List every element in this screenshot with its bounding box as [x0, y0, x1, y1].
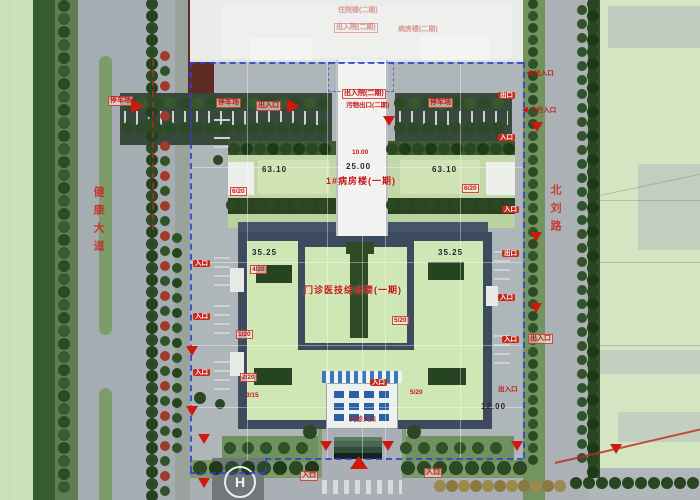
label-east-gateway: 出入口	[498, 386, 518, 393]
entrance-arrow	[383, 116, 395, 126]
boundary-arrow	[198, 478, 210, 488]
boundary-arrow	[320, 441, 332, 451]
label-south-entry: 入口	[300, 471, 318, 481]
label-parking-left: 停车场	[216, 98, 241, 108]
boundary-arrow	[382, 441, 394, 451]
dim-ward-mid: 25.00	[346, 163, 371, 172]
code-badge: 1/20	[236, 330, 253, 339]
label-east-entry: 入口	[498, 134, 515, 141]
dim-main-left: 35.25	[252, 249, 277, 258]
label-main-complex: 门诊医技综合楼(一期)	[304, 286, 402, 296]
label-entry-phase2-faded: 出入院(二期)	[334, 23, 378, 33]
label-west-entry: 入口	[193, 260, 210, 267]
label-outpatient-entry: 门诊入口	[350, 416, 376, 423]
label-parking-west: 停车场	[108, 96, 133, 106]
entrance-arrow	[530, 303, 542, 313]
label-pedestrian-entry: ◀ 人行入口	[522, 107, 556, 114]
site-plan: H 健康大道北刘路住院楼(二期)出入院(二期)病房楼(二期)停车场停车场出入口停…	[0, 0, 700, 500]
label-west-entry: 入口	[193, 369, 210, 376]
label-canopy-entry: 入口	[370, 379, 387, 386]
code-badge: 2/20	[240, 373, 257, 382]
boundary-arrow	[511, 441, 523, 451]
code-badge: 5/20	[410, 389, 423, 396]
dim-main-bottom: 12.00	[481, 403, 506, 412]
label-east-exit: 出口	[502, 250, 519, 257]
label-gateway: 出入口	[256, 101, 281, 111]
code-badge: 5/20	[392, 316, 409, 325]
dim-red-small: 10.00	[352, 149, 368, 156]
label-east-entry: 入口	[502, 206, 519, 213]
label-waste-exit: 污物出口(二期)	[346, 102, 389, 109]
street-name-east: 北刘路	[549, 184, 561, 238]
dim-main-right: 35.25	[438, 249, 463, 258]
code-badge: 3/15	[246, 392, 259, 399]
boundary-arrow	[186, 346, 198, 356]
boundary-arrow	[186, 406, 198, 416]
annotation-layer: 健康大道北刘路住院楼(二期)出入院(二期)病房楼(二期)停车场停车场出入口停车场…	[0, 0, 700, 500]
code-badge: 4/20	[250, 265, 267, 274]
dim-ward-left: 63.10	[262, 166, 287, 175]
label-east-entry: 入口	[502, 336, 519, 343]
label-south-entry: 入口	[424, 468, 442, 478]
boundary-arrow	[198, 434, 210, 444]
entrance-arrow	[287, 99, 300, 113]
street-name-west: 健康大道	[92, 186, 104, 258]
entrance-arrow	[531, 122, 543, 132]
label-parking-right: 停车场	[428, 98, 453, 108]
label-ward-phase1: 1#病房楼(一期)	[326, 177, 396, 187]
label-west-entry: 入口	[193, 313, 210, 320]
entrance-arrow	[131, 99, 144, 113]
label-east-gateway: 出入口	[528, 334, 553, 344]
code-badge: 6/20	[462, 184, 479, 193]
code-badge: 6/20	[230, 187, 247, 196]
label-east-entry: 入口	[498, 294, 515, 301]
label-entry-phase2: 出入院(二期)	[342, 89, 386, 99]
label-ward-phase2: 病房楼(二期)	[398, 26, 438, 34]
main-gate-arrow	[350, 456, 368, 469]
label-east-gate: ◀ 出入口	[526, 70, 554, 77]
dim-ward-right: 63.10	[432, 166, 457, 175]
label-inpatient-phase2: 住院楼(二期)	[338, 7, 378, 15]
label-east-exit: 出口	[498, 92, 515, 99]
red-route-line	[555, 428, 700, 464]
entrance-arrow	[530, 232, 542, 242]
